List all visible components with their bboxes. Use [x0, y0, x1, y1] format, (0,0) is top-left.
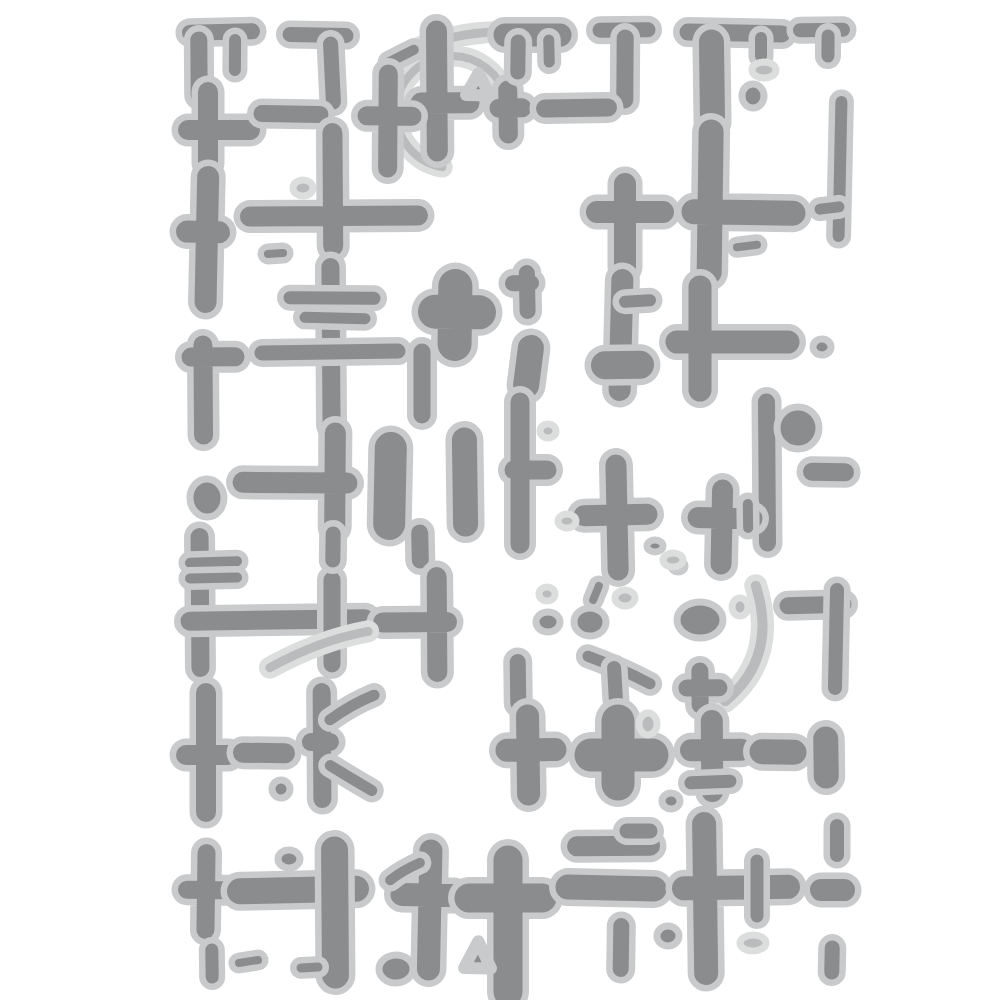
pattern-shape-bar: [464, 440, 465, 524]
pattern-shape-cross: [597, 184, 663, 267]
pattern-shape-cross: [188, 92, 250, 163]
pattern-shape-bar: [820, 207, 839, 209]
pattern-shape-bar: [331, 44, 334, 102]
pattern-shape-bar: [518, 662, 519, 703]
pattern-shape-dot: [677, 602, 723, 638]
pattern-shape-dot: [813, 339, 831, 355]
pattern-shape-bar: [526, 348, 531, 385]
pattern-shape-dot: [777, 407, 819, 449]
pattern-shape-bar: [762, 752, 794, 753]
pattern-shape-bar: [568, 887, 654, 889]
pattern-shape-bar: [545, 108, 608, 109]
pattern-shape-dot: [293, 180, 313, 196]
pattern-shape-dot: [752, 62, 776, 78]
pattern-shape-cross: [677, 287, 788, 390]
pattern-shape-dot: [742, 84, 764, 108]
pattern-shape-bar: [301, 967, 318, 968]
pattern-shape-bar: [691, 781, 730, 783]
pattern-shape-cross: [435, 286, 480, 345]
pattern-shape-dot: [732, 598, 748, 616]
pattern-shape-cross: [683, 823, 789, 973]
pattern-shape-tri: [466, 73, 490, 95]
pattern-shape-dot: [574, 608, 606, 636]
pattern-shape-cross: [583, 464, 648, 570]
pattern-shape-bar: [290, 298, 374, 299]
pattern-shape-bar: [812, 472, 845, 473]
pattern-shape-cross: [687, 671, 719, 705]
pattern-shape-bar: [614, 668, 616, 700]
pattern-shape-bar: [190, 561, 237, 563]
pattern-shape-cross: [243, 432, 348, 527]
pattern-shape-cross: [383, 577, 448, 672]
pattern-shape-cross: [507, 716, 556, 795]
pattern-shape-bar: [190, 577, 237, 580]
pattern-shape-cross: [186, 177, 221, 303]
pattern-shape-bar: [711, 42, 712, 122]
pattern-shape-bar: [262, 351, 398, 353]
pattern-shape-dot: [539, 587, 555, 601]
pattern-shape-bar: [389, 448, 391, 524]
pattern-shape-dot: [536, 612, 560, 632]
pattern-shape-bar: [832, 948, 833, 972]
pattern-shape-bar: [239, 960, 258, 963]
pattern-shape-cross: [513, 273, 532, 311]
pattern-shape-dot: [639, 713, 657, 735]
pattern-shape-dot: [379, 955, 414, 984]
pattern-shape-bar: [262, 114, 320, 115]
pattern-shape-dot: [278, 850, 300, 868]
product-image: [0, 0, 1000, 1000]
pattern-shape-dot: [272, 780, 290, 798]
pattern-shape-dot: [657, 926, 679, 946]
pattern-shape-bar: [826, 739, 827, 776]
pattern-shape-bar: [243, 753, 285, 754]
pattern-shape-dot: [663, 553, 683, 567]
pattern-shape-bar: [420, 533, 421, 560]
pattern-shape-bar: [835, 590, 837, 688]
pattern-shape-bar: [621, 926, 622, 969]
pattern-shape-cross: [499, 90, 523, 134]
pattern-shape-dot: [190, 479, 225, 518]
pattern-shape-bar: [577, 846, 650, 847]
pattern-shape-dot: [615, 590, 635, 606]
pattern-shape-dot: [740, 935, 766, 951]
pattern-shape-cross: [191, 345, 236, 435]
pattern-shape-bar: [305, 317, 365, 318]
pattern-shape-bar: [268, 253, 283, 254]
pattern-shape-dot: [540, 424, 556, 438]
pattern-shape-bar: [593, 586, 599, 600]
embossing-pattern-figure: [0, 0, 1000, 1000]
pattern-svg: [0, 0, 1000, 1000]
pattern-shape-dot: [647, 540, 663, 552]
pattern-shape-cross: [186, 693, 228, 812]
pattern-shape-dot: [662, 793, 680, 809]
pattern-shape-bar: [625, 300, 650, 303]
pattern-shape-bar: [737, 245, 757, 247]
pattern-shape-bar: [335, 850, 336, 975]
pattern-shape-dot: [558, 514, 576, 528]
